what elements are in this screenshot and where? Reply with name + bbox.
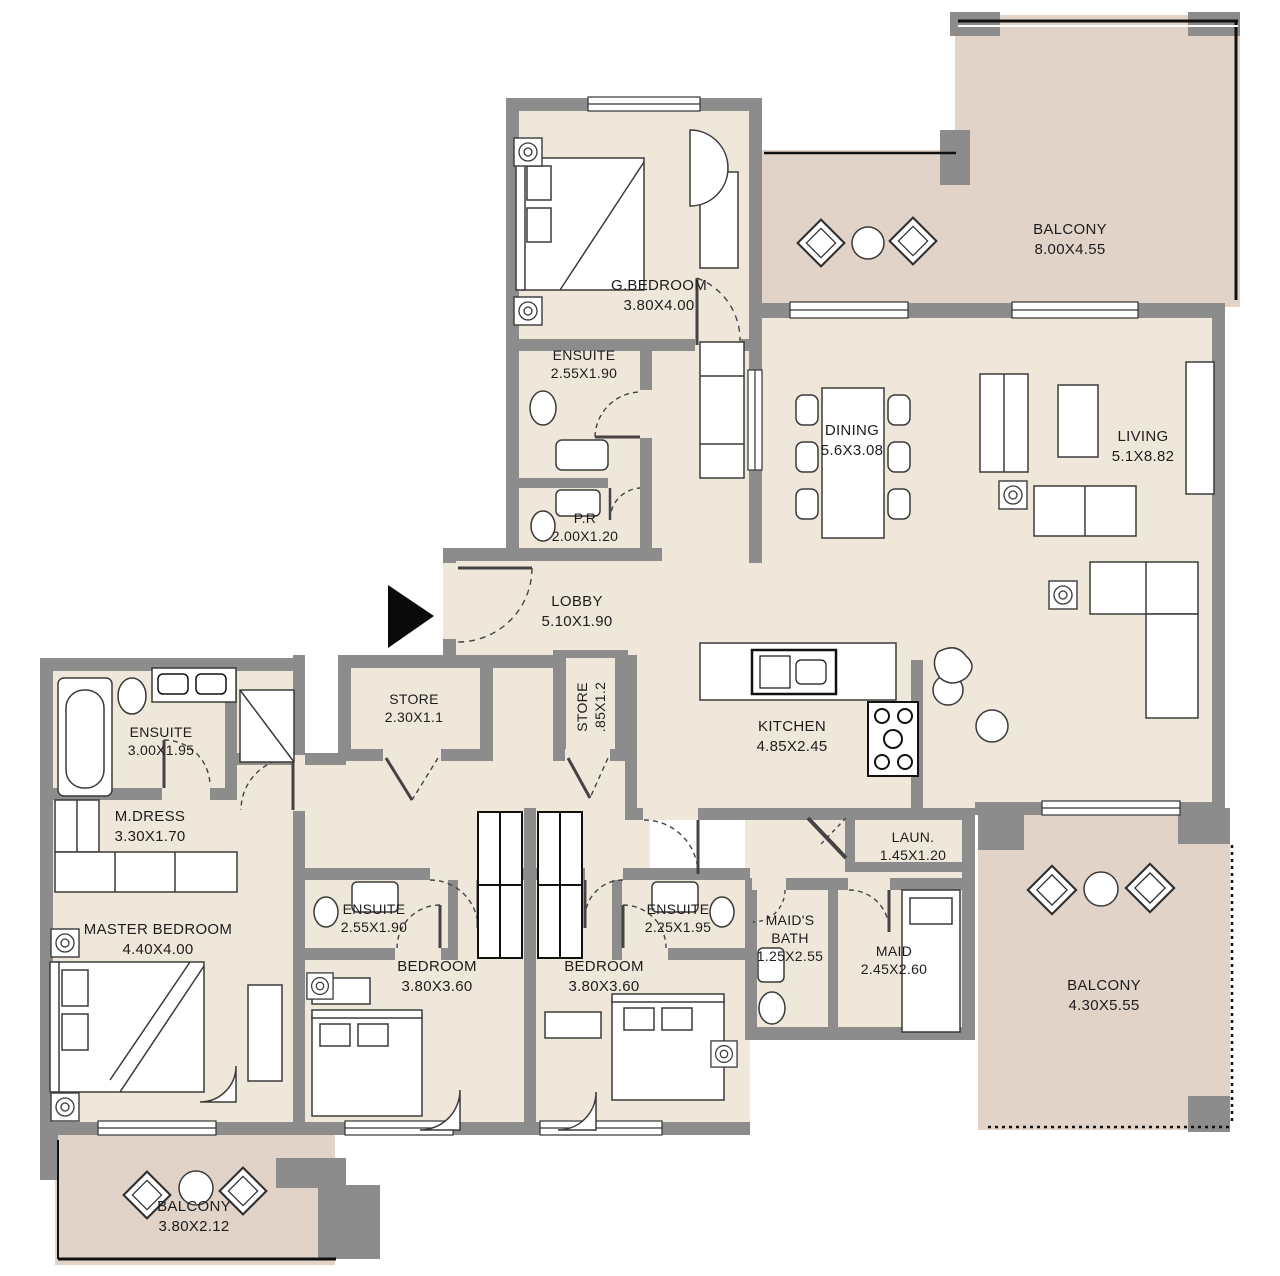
wall-segment bbox=[749, 98, 762, 563]
door-opening bbox=[565, 749, 610, 761]
balcony-post bbox=[318, 1185, 380, 1259]
room-dims: 2.55X1.90 bbox=[551, 364, 618, 382]
toilet-master bbox=[118, 678, 146, 714]
room-dims: 2.45X2.60 bbox=[861, 960, 928, 978]
room-dims: 3.00X1.95 bbox=[128, 741, 195, 759]
room-name: KITCHEN bbox=[756, 717, 827, 737]
room-name: STORE bbox=[385, 690, 443, 708]
window bbox=[1042, 801, 1180, 815]
room-dims: 1.45X1.20 bbox=[880, 846, 947, 864]
window bbox=[98, 1121, 216, 1135]
sofa-vertical bbox=[980, 374, 1028, 472]
room-label-bedroom-2: BEDROOM 3.80X3.60 bbox=[564, 957, 644, 997]
room-label-bedroom-1: BEDROOM 3.80X3.60 bbox=[397, 957, 477, 997]
room-name: BALCONY bbox=[157, 1197, 231, 1217]
toilet-gensuite bbox=[530, 391, 556, 425]
room-label-balcony-top: BALCONY 8.00X4.55 bbox=[1033, 220, 1107, 260]
room-label-master-ensuite: ENSUITE 3.00X1.95 bbox=[128, 723, 195, 759]
wall-segment bbox=[828, 888, 838, 1038]
balcony-table bbox=[852, 227, 884, 259]
balcony-floor-bottom-right bbox=[978, 815, 1230, 1130]
room-dims: 4.40X4.00 bbox=[84, 940, 232, 960]
balcony-post bbox=[1188, 12, 1240, 36]
room-name: ENSUITE bbox=[341, 900, 408, 918]
room-dims: 5.6X3.08 bbox=[821, 441, 883, 461]
window bbox=[748, 370, 762, 470]
room-label-maid: MAID 2.45X2.60 bbox=[861, 942, 928, 978]
room-dims: 3.80X2.12 bbox=[157, 1217, 231, 1237]
kitchen-island bbox=[700, 643, 896, 700]
room-label-store-1: STORE 2.30X1.1 bbox=[385, 690, 443, 726]
side-table-icon bbox=[51, 929, 79, 957]
room-name: BEDROOM bbox=[397, 957, 477, 977]
window bbox=[790, 302, 908, 318]
room-dims: 2.55X1.90 bbox=[341, 918, 408, 936]
room-label-m-dress: M.DRESS 3.30X1.70 bbox=[114, 807, 185, 847]
room-dims: 2.30X1.1 bbox=[385, 708, 443, 726]
plant-table-icon bbox=[999, 481, 1027, 509]
side-table-icon bbox=[514, 138, 542, 166]
room-name: LIVING bbox=[1112, 427, 1174, 447]
room-label-maids-bath: MAID'S BATH 1.25X2.55 bbox=[751, 911, 829, 965]
balcony-floor-top bbox=[955, 15, 1240, 307]
wall-segment bbox=[480, 655, 493, 761]
wall-segment bbox=[625, 655, 637, 820]
door-opening bbox=[443, 563, 456, 639]
door-opening bbox=[162, 788, 210, 800]
room-dims: 5.1X8.82 bbox=[1112, 447, 1174, 467]
room-label-g-bedroom: G.BEDROOM 3.80X4.00 bbox=[611, 276, 707, 316]
toilet-ensuite2 bbox=[710, 897, 734, 927]
room-name: G.BEDROOM bbox=[611, 276, 707, 296]
balcony-table bbox=[1084, 872, 1118, 906]
room-dims: 3.80X3.60 bbox=[397, 977, 477, 997]
wall-segment bbox=[612, 875, 622, 960]
balcony-post bbox=[978, 808, 1024, 850]
wall-segment bbox=[524, 808, 536, 1135]
bathtub bbox=[58, 678, 112, 796]
plant-table-icon bbox=[1049, 581, 1077, 609]
wall-segment bbox=[338, 655, 351, 761]
room-label-laundry: LAUN. 1.45X1.20 bbox=[880, 828, 947, 864]
side-table-icon bbox=[307, 973, 333, 999]
room-dims: 4.30X5.55 bbox=[1067, 996, 1141, 1016]
bed-bedroom1 bbox=[312, 1010, 422, 1116]
room-label-g-ensuite: ENSUITE 2.55X1.90 bbox=[551, 346, 618, 382]
door-opening bbox=[383, 749, 441, 761]
room-dims: 3.30X1.70 bbox=[114, 827, 185, 847]
wall-segment bbox=[298, 753, 346, 765]
room-name: LAUN. bbox=[880, 828, 947, 846]
room-label-powder-room: P.R 2.00X1.20 bbox=[552, 509, 619, 545]
balcony-post bbox=[940, 130, 970, 185]
floor-plan-drawing bbox=[0, 0, 1280, 1276]
room-name: MAID bbox=[861, 942, 928, 960]
room-name: ENSUITE bbox=[128, 723, 195, 741]
room-dims: 4.85X2.45 bbox=[756, 737, 827, 757]
desk-bedroom2 bbox=[545, 1012, 601, 1038]
room-name: ENSUITE bbox=[645, 900, 712, 918]
balcony-post bbox=[276, 1158, 346, 1188]
door-opening bbox=[848, 878, 890, 890]
room-name: BALCONY bbox=[1033, 220, 1107, 240]
room-label-ensuite-bed1: ENSUITE 2.55X1.90 bbox=[341, 900, 408, 936]
door-opening bbox=[643, 808, 698, 820]
side-table-icon bbox=[514, 297, 542, 325]
room-label-lobby: LOBBY 5.10X1.90 bbox=[541, 592, 612, 632]
room-name: MASTER BEDROOM bbox=[84, 920, 232, 940]
window bbox=[588, 97, 700, 111]
vanity-double bbox=[152, 668, 236, 702]
room-name: MAID'S BATH bbox=[751, 911, 829, 947]
bed-bedroom2 bbox=[612, 994, 724, 1100]
balcony-post bbox=[1178, 808, 1230, 844]
toilet-ensuite1 bbox=[314, 897, 338, 927]
room-name: BALCONY bbox=[1067, 976, 1141, 996]
door-opening bbox=[640, 390, 652, 438]
wall-segment bbox=[553, 655, 566, 761]
sofa-two-seat bbox=[1034, 486, 1136, 536]
wardrobe-hall bbox=[700, 342, 744, 478]
dresser-master bbox=[248, 985, 282, 1081]
armchair bbox=[1058, 385, 1098, 457]
room-name: ENSUITE bbox=[551, 346, 618, 364]
window bbox=[1012, 302, 1138, 318]
window bbox=[540, 1121, 662, 1135]
door-opening bbox=[752, 878, 786, 890]
room-dims: 8.00X4.55 bbox=[1033, 240, 1107, 260]
room-dims: 3.80X3.60 bbox=[564, 977, 644, 997]
room-name: LOBBY bbox=[541, 592, 612, 612]
door-opening bbox=[293, 755, 305, 811]
room-dims: 5.10X1.90 bbox=[541, 612, 612, 632]
room-label-kitchen: KITCHEN 4.85X2.45 bbox=[756, 717, 827, 757]
plant bbox=[976, 710, 1008, 742]
toilet-maids-bath bbox=[759, 992, 785, 1024]
entrance-arrow bbox=[388, 585, 434, 648]
room-label-ensuite-bed2: ENSUITE 2.25X1.95 bbox=[645, 900, 712, 936]
door-opening bbox=[430, 868, 478, 880]
bed-master bbox=[50, 962, 204, 1092]
dining-table bbox=[796, 388, 910, 538]
room-dims: 2.00X1.20 bbox=[552, 527, 619, 545]
door-kitchen bbox=[644, 820, 698, 874]
wall-segment bbox=[293, 655, 305, 1135]
room-dims: 1.25X2.55 bbox=[751, 947, 829, 965]
room-name: DINING bbox=[821, 421, 883, 441]
balcony-post bbox=[1188, 1096, 1230, 1132]
door-opening bbox=[608, 478, 640, 488]
stove bbox=[868, 702, 918, 776]
bed-gbedroom bbox=[516, 158, 644, 290]
side-table-icon bbox=[711, 1041, 737, 1067]
room-dims: .85X1.2 bbox=[591, 682, 609, 732]
room-name: STORE bbox=[573, 682, 591, 732]
side-table-icon bbox=[51, 1093, 79, 1121]
room-name: P.R bbox=[552, 509, 619, 527]
balcony-post bbox=[40, 1128, 58, 1180]
room-label-balcony-br: BALCONY 4.30X5.55 bbox=[1067, 976, 1141, 1016]
vanity-gensuite bbox=[556, 440, 608, 470]
wall-segment bbox=[506, 548, 662, 561]
balcony-post bbox=[950, 12, 1000, 36]
room-name: BEDROOM bbox=[564, 957, 644, 977]
room-dims: 3.80X4.00 bbox=[611, 296, 707, 316]
room-label-master-bedroom: MASTER BEDROOM 4.40X4.00 bbox=[84, 920, 232, 960]
wall-segment bbox=[962, 815, 975, 1040]
room-label-living: LIVING 5.1X8.82 bbox=[1112, 427, 1174, 467]
wall-segment bbox=[640, 345, 652, 560]
room-name: M.DRESS bbox=[114, 807, 185, 827]
tv-unit bbox=[1186, 362, 1214, 494]
room-dims: 2.25X1.95 bbox=[645, 918, 712, 936]
room-label-store-2: STORE .85X1.2 bbox=[573, 682, 609, 732]
room-label-balcony-bl: BALCONY 3.80X2.12 bbox=[157, 1197, 231, 1237]
wall-segment bbox=[338, 655, 562, 668]
room-label-dining: DINING 5.6X3.08 bbox=[821, 421, 883, 461]
floor-plan-canvas: { "plan": { "colors": { "wall": "#8c8c8c… bbox=[0, 0, 1280, 1276]
door-opening bbox=[585, 868, 623, 880]
